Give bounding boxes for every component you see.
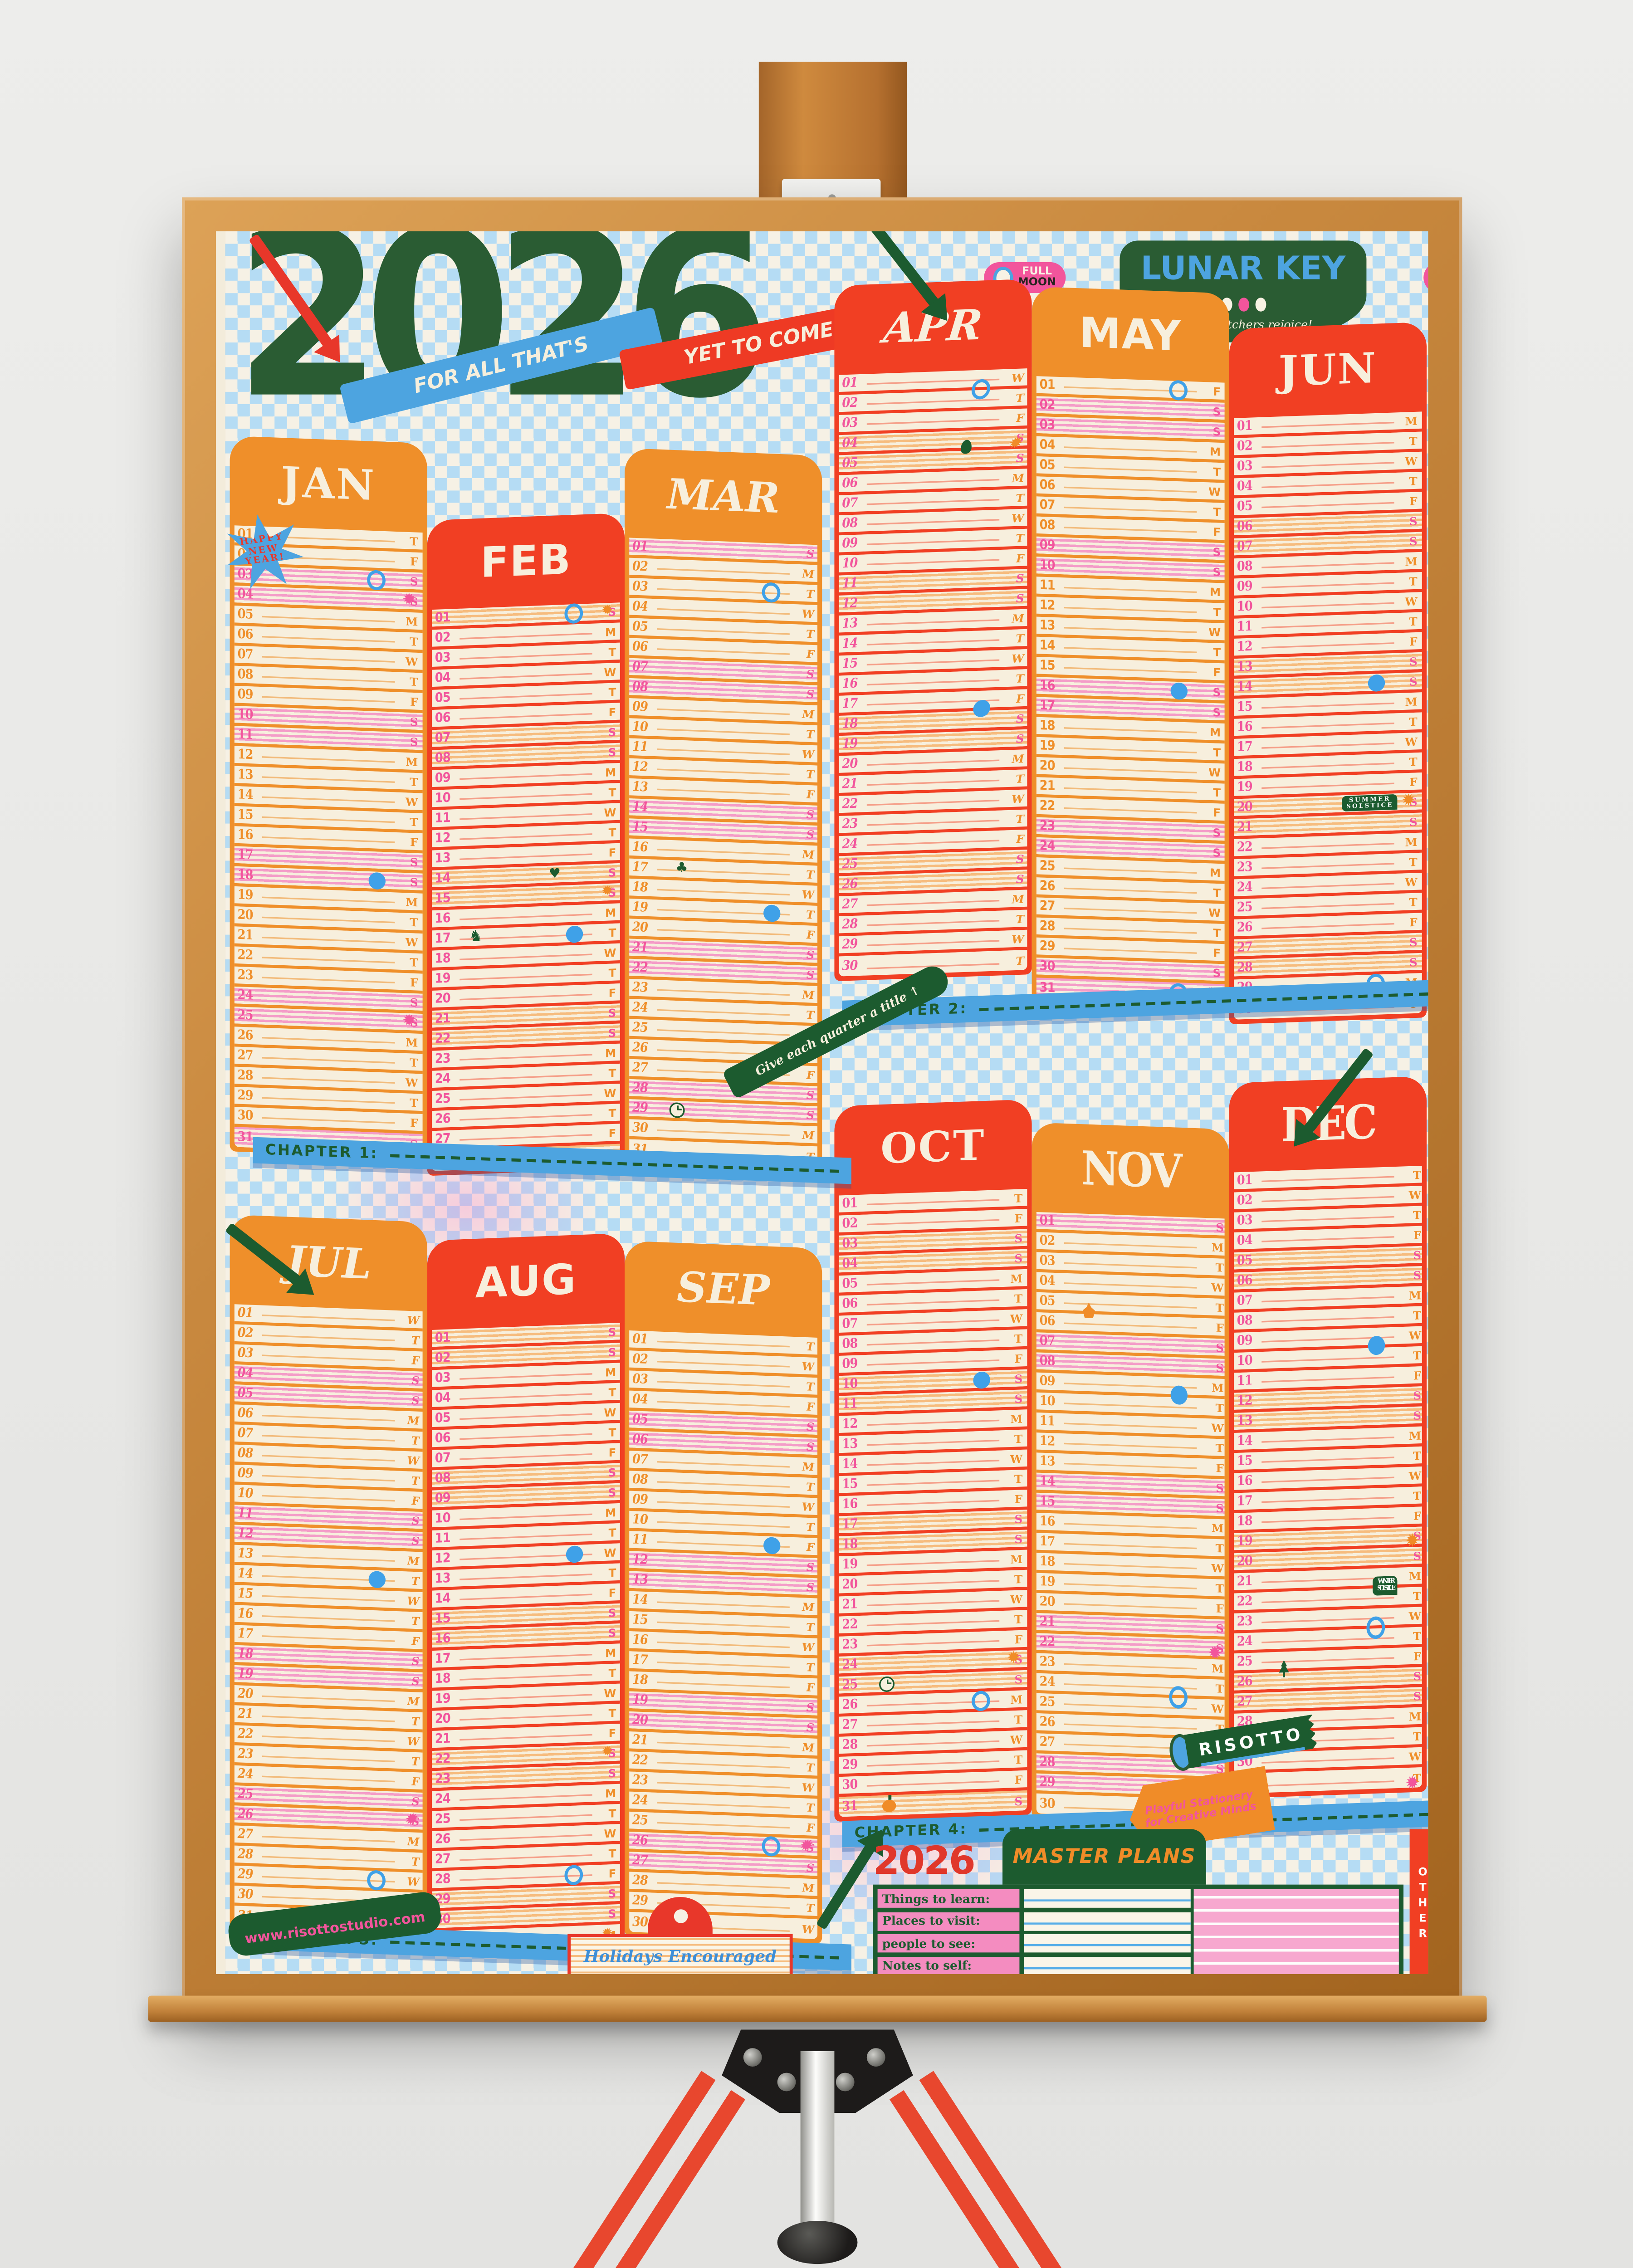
day-number: 11: [238, 1505, 258, 1522]
day-number: 06: [1237, 518, 1257, 535]
day-number: 06: [842, 475, 862, 492]
weekday-letter: S: [1016, 871, 1024, 885]
weekday-letter: T: [1216, 1400, 1222, 1414]
weekday-letter: T: [1213, 645, 1221, 659]
day-number: 03: [435, 650, 455, 666]
day-number: 11: [842, 1396, 862, 1412]
weekday-letter: W: [802, 1779, 814, 1794]
day-number: 18: [238, 867, 258, 884]
day-number: 21: [238, 927, 258, 943]
weekday-letter: W: [604, 664, 617, 679]
day-number: 04: [842, 435, 862, 451]
day-number: 25: [842, 1677, 862, 1693]
weekday-letter: S: [1213, 684, 1221, 699]
day-number: 12: [1040, 1433, 1060, 1450]
weekday-letter: F: [1213, 945, 1221, 959]
month-rows: 01S✹02M03T04W05T06F07S08S09M10T11W12T13F…: [432, 602, 620, 1171]
weekday-letter: T: [1409, 574, 1419, 588]
day-number: 02: [842, 395, 862, 411]
day-number: 29: [632, 1893, 653, 1909]
month-name: MAY: [1080, 309, 1182, 360]
day-number: 27: [632, 1853, 653, 1869]
day-number: 11: [435, 1530, 455, 1547]
day-number: 21: [1237, 1573, 1257, 1589]
day-number: 28: [632, 1080, 653, 1096]
weekday-letter: M: [1212, 1240, 1222, 1254]
day-number: 23: [238, 1746, 258, 1763]
day-number: 28: [632, 1872, 653, 1889]
day-number: 21: [435, 1731, 455, 1747]
month-panel-dec: DEC01T02W03T04F05S06S07M08T09W10T11F12S1…: [1229, 1076, 1427, 1799]
day-number: 12: [1040, 597, 1060, 614]
day-number: 27: [1237, 939, 1257, 956]
day-number: 03: [238, 1345, 258, 1362]
weekday-letter: F: [1015, 1632, 1024, 1646]
easel-pole-knob: [777, 2221, 858, 2264]
weekday-letter: T: [410, 814, 420, 828]
weekday-letter: S: [1213, 424, 1221, 438]
day-number: 15: [238, 807, 258, 823]
weekday-letter: T: [1213, 885, 1221, 899]
weekday-letter: W: [1010, 1311, 1024, 1325]
day-number: 20: [1040, 758, 1060, 774]
day-number: 19: [1040, 738, 1060, 754]
day-number: 01: [1040, 377, 1060, 393]
weekday-letter: W: [802, 1921, 814, 1936]
sparkle-icon: ✹: [405, 1813, 416, 1828]
weekday-letter: W: [802, 1359, 814, 1373]
weekday-letter: W: [604, 1685, 617, 1700]
holidays-encouraged-tag: Holidays Encouraged: [567, 1919, 792, 1974]
weekday-letter: T: [1409, 474, 1419, 488]
day-number: 17: [842, 696, 862, 712]
day-number: 07: [632, 659, 653, 675]
weekday-letter: M: [407, 1693, 420, 1708]
weekday-letter: T: [410, 955, 420, 969]
weekday-letter: T: [609, 1065, 617, 1079]
weekday-letter: M: [1405, 553, 1419, 568]
month-rows: 01W02T03F04S05S06M07T08W09T10F11S12S13M1…: [235, 1304, 423, 1933]
weekday-letter: S: [1016, 450, 1024, 464]
weekday-letter: M: [407, 1833, 420, 1848]
day-number: 13: [238, 767, 258, 783]
weekday-letter: S: [1015, 1511, 1024, 1525]
weekday-letter: M: [802, 1880, 814, 1894]
day-number: 27: [1040, 898, 1060, 914]
weekday-letter: T: [609, 1384, 617, 1398]
day-number: 14: [1040, 638, 1060, 654]
day-number: 15: [1237, 699, 1257, 715]
weekday-letter: F: [1213, 524, 1221, 538]
day-number: 12: [842, 596, 862, 612]
clock-change-icon: [670, 1101, 685, 1117]
bolt-icon: [867, 2048, 885, 2067]
weekday-letter: M: [605, 1364, 617, 1379]
weekday-letter: S: [807, 1700, 815, 1714]
full-moon-icon: [762, 582, 781, 602]
month-panel-feb: FEB01S✹02M03T04W05T06F07S08S09M10T11W12T…: [427, 513, 625, 1176]
weekday-letter: S: [411, 1794, 420, 1808]
weekday-letter: S: [807, 807, 815, 821]
easel-frame: 2026 FOR ALL THAT'S YET TO COME FULLMOON…: [182, 197, 1462, 2008]
sparkle-icon: ✹: [403, 594, 416, 608]
weekday-letter: T: [1014, 1331, 1024, 1345]
full-moon-icon: [564, 602, 583, 623]
weekday-letter: F: [410, 694, 420, 708]
day-number: 08: [238, 667, 258, 683]
day-number: 02: [632, 559, 653, 575]
year-title-art: 2026 FOR ALL THAT'S YET TO COME: [235, 231, 898, 472]
day-number: 17: [842, 1516, 862, 1533]
other-label: OTHER: [1417, 1866, 1428, 1943]
weekday-letter: T: [806, 626, 814, 640]
day-number: 03: [1040, 1253, 1060, 1269]
full-moon-icon: [367, 569, 386, 590]
weekday-letter: W: [1012, 931, 1024, 946]
day-number: 14: [238, 1566, 258, 1582]
weekday-letter: W: [802, 1639, 814, 1654]
weekday-letter: T: [1409, 894, 1419, 909]
weekday-letter: W: [1211, 1420, 1221, 1434]
weekday-letter: W: [1208, 624, 1222, 639]
day-number: 12: [1237, 1393, 1257, 1409]
day-number: 26: [1237, 919, 1257, 936]
day-number: 22: [632, 1752, 653, 1769]
weekday-letter: W: [1012, 651, 1024, 665]
weekday-letter: T: [1016, 530, 1024, 544]
day-number: 17: [238, 847, 258, 863]
weekday-letter: T: [806, 1339, 814, 1353]
day-number: 27: [1237, 1694, 1257, 1710]
day-number: 23: [435, 1051, 455, 1067]
weekday-letter: F: [1413, 1368, 1419, 1382]
weekday-letter: T: [806, 1619, 814, 1633]
day-number: 17: [1237, 739, 1257, 755]
day-number: 29: [842, 1757, 862, 1773]
day-number: 23: [1040, 1654, 1060, 1670]
day-number: 06: [1040, 1313, 1060, 1330]
new-moon-icon: [973, 1371, 990, 1388]
day-number: 30: [632, 1120, 653, 1136]
day-number: 15: [435, 1610, 455, 1627]
day-number: 13: [842, 1436, 862, 1452]
day-number: 14: [842, 1456, 862, 1472]
month-header: JUN: [1234, 322, 1422, 418]
day-number: 26: [632, 1833, 653, 1849]
day-number: 25: [238, 1786, 258, 1803]
weekday-letter: F: [1016, 691, 1024, 705]
day-number: 15: [842, 1476, 862, 1492]
day-number: 22: [1237, 839, 1257, 855]
day-number: 30: [1040, 1796, 1060, 1812]
weekday-letter: S: [807, 947, 815, 961]
day-number: 26: [632, 1040, 653, 1056]
month-panel-apr: APR01W02T03F04S✹05S06M07T08W09T10F11S12S…: [834, 279, 1032, 982]
day-number: 15: [632, 819, 653, 836]
day-number: 13: [238, 1546, 258, 1562]
weekday-letter: S: [1015, 1371, 1024, 1385]
day-number: 21: [238, 1706, 258, 1722]
sparkle-icon: ✹: [800, 1840, 812, 1854]
day-number: 15: [1040, 1494, 1060, 1510]
weekday-letter: M: [1210, 444, 1222, 458]
weekday-letter: W: [406, 934, 420, 949]
day-number: 05: [1040, 1293, 1060, 1310]
day-number: 19: [1237, 779, 1257, 795]
new-moon-icon: [566, 1545, 583, 1562]
day-number: 10: [632, 1512, 653, 1528]
day-number: 26: [1040, 1714, 1060, 1730]
weekday-letter: T: [411, 1333, 420, 1347]
weekday-letter: M: [802, 1740, 814, 1754]
weekday-letter: T: [1413, 1589, 1419, 1603]
month-name: OCT: [880, 1122, 986, 1173]
weekday-letter: T: [609, 1425, 617, 1439]
weekday-letter: S: [807, 1439, 815, 1453]
month-header: DEC: [1234, 1076, 1422, 1173]
full-moon-icon: [1169, 1685, 1188, 1708]
weekday-letter: S: [1413, 1669, 1419, 1683]
day-number: 26: [842, 876, 862, 893]
day-number: 04: [632, 1392, 653, 1408]
weekday-letter: M: [802, 706, 814, 721]
weekday-letter: T: [609, 684, 617, 699]
weekday-letter: T: [1216, 1440, 1222, 1454]
weekday-letter: W: [604, 1404, 617, 1419]
master-plans-grid: Things to learn: Places to visit: people…: [873, 1885, 1403, 1974]
weekday-letter: M: [1010, 1411, 1024, 1426]
day-number: 06: [238, 626, 258, 643]
weekday-letter: S: [1409, 814, 1419, 828]
day-number: 25: [1040, 1694, 1060, 1711]
day-number: 10: [238, 707, 258, 723]
weekday-letter: F: [1015, 1491, 1024, 1505]
day-number: 23: [1237, 1613, 1257, 1630]
day-number: 19: [842, 1556, 862, 1573]
chapter-2-writein-line: [980, 992, 1428, 1010]
day-number: 24: [238, 987, 258, 1004]
easel-ledge: [148, 1996, 1486, 2022]
month-panel-may: MAY01F02S03S04M05T06W07T08F09S10S11M12T1…: [1032, 287, 1229, 1009]
weekday-letter: S: [1413, 1247, 1419, 1261]
weekday-letter: M: [1010, 1271, 1024, 1285]
day-number: 18: [238, 1646, 258, 1662]
weekday-letter: S: [608, 744, 617, 758]
weekday-letter: W: [1010, 1592, 1024, 1606]
day-number: 15: [1040, 658, 1060, 674]
weekday-letter: S: [1409, 654, 1419, 668]
day-number: 10: [238, 1486, 258, 1502]
weekday-letter: S: [608, 724, 617, 738]
weekday-letter: M: [605, 1785, 617, 1800]
day-number: 11: [1040, 577, 1060, 594]
day-number: 29: [1040, 1774, 1060, 1790]
day-number: 08: [435, 1470, 455, 1486]
month-panel-oct: OCT01T02F03S04S05M06T07W08T09F10S11S12M1…: [834, 1099, 1032, 1822]
day-number: 12: [1237, 639, 1257, 655]
weekday-letter: F: [807, 1680, 814, 1694]
weekday-letter: T: [1213, 785, 1221, 799]
chapter-1-label: CHAPTER 1:: [265, 1142, 378, 1163]
day-number: 13: [632, 1572, 653, 1588]
day-number: 07: [238, 1425, 258, 1442]
weekday-letter: S: [1016, 851, 1024, 865]
weekday-letter: T: [1409, 854, 1419, 868]
easel-calendar-scene: 2026 FOR ALL THAT'S YET TO COME FULLMOON…: [0, 0, 1633, 2268]
mp-row-label: Notes to self:: [878, 1957, 1020, 1974]
day-number: 16: [238, 1606, 258, 1622]
day-number: 06: [435, 710, 455, 726]
day-number: 09: [632, 699, 653, 715]
weekday-letter: T: [411, 1754, 420, 1768]
weekday-letter: T: [1016, 811, 1024, 825]
day-number: 22: [238, 1726, 258, 1742]
day-number: 21: [435, 1011, 455, 1027]
month-rows: 01T02W03T04F05S06S07M08T09W10T11F12S13S1…: [1234, 1166, 1422, 1794]
month-name: AUG: [475, 1256, 577, 1307]
weekday-letter: T: [411, 1854, 420, 1868]
weekday-letter: M: [406, 614, 419, 628]
weekday-letter: T: [410, 674, 420, 688]
weekday-letter: M: [1405, 694, 1419, 709]
weekday-letter: W: [1010, 1732, 1024, 1746]
month-name: SEP: [677, 1264, 770, 1315]
sparkle-icon: ✹: [1209, 1647, 1218, 1662]
weekday-letter: T: [609, 1525, 617, 1539]
month-panel-jul: JUL01W02T03F04S05S06M07T08W09T10F11S12S1…: [230, 1215, 427, 1938]
day-number: 16: [632, 839, 653, 855]
weekday-letter: S: [1015, 1794, 1024, 1808]
weekday-letter: T: [411, 1714, 420, 1728]
day-number: 14: [1237, 679, 1257, 695]
day-number: 24: [238, 1766, 258, 1783]
weekday-letter: F: [609, 1725, 617, 1740]
weekday-letter: T: [609, 1665, 617, 1679]
weekday-letter: M: [1012, 470, 1024, 485]
month-name: JUN: [1279, 345, 1378, 396]
day-number: 03: [435, 1370, 455, 1386]
mp-notes-panel: [1194, 1889, 1399, 1974]
weekday-letter: F: [609, 1585, 617, 1599]
day-number: 21: [1040, 1614, 1060, 1630]
day-number: 26: [435, 1831, 455, 1848]
weekday-letter: M: [802, 1599, 814, 1614]
weekday-letter: S: [807, 666, 815, 680]
weekday-letter: F: [1015, 1351, 1024, 1365]
weekday-letter: T: [1413, 1207, 1419, 1222]
day-number: 13: [1040, 1453, 1060, 1470]
day-number: 05: [632, 1412, 653, 1428]
day-number: 08: [632, 679, 653, 695]
holiday-tag: SUMMER SOLSTICE: [1343, 793, 1398, 812]
heart-icon: ♥: [549, 867, 562, 881]
weekday-letter: T: [1409, 754, 1419, 768]
day-number: 04: [1040, 1273, 1060, 1289]
weekday-letter: T: [609, 825, 617, 839]
weekday-letter: F: [1015, 1211, 1024, 1225]
day-number: 21: [842, 776, 862, 792]
weekday-letter: T: [806, 867, 814, 881]
weekday-letter: T: [609, 644, 617, 658]
month-panel-nov: NOV01S02M03T04W05T06F07S08S09M10T11W12T1…: [1032, 1122, 1229, 1825]
weekday-letter: S: [410, 995, 420, 1009]
weekday-letter: S: [807, 1579, 815, 1593]
bolt-icon: [777, 2073, 796, 2092]
weekday-letter: T: [609, 1805, 617, 1819]
weekday-letter: F: [1016, 831, 1024, 845]
weekday-letter: S: [1016, 571, 1024, 585]
day-number: 04: [1040, 437, 1060, 454]
weekday-letter: W: [1208, 905, 1222, 919]
weekday-letter: T: [411, 1613, 420, 1628]
month-header: OCT: [839, 1100, 1027, 1196]
day-number: 26: [435, 1111, 455, 1127]
day-number: 12: [842, 1416, 862, 1432]
day-number: 05: [1040, 457, 1060, 474]
weekday-letter: W: [1409, 1328, 1419, 1342]
master-plans-year: 2026: [873, 1838, 974, 1883]
weekday-letter: S: [411, 1393, 420, 1407]
weekday-letter: S: [1015, 1391, 1024, 1405]
day-number: 28: [435, 1871, 455, 1887]
day-number: 18: [1237, 759, 1257, 775]
day-number: 17: [632, 860, 653, 876]
shamrock-icon: ♣: [675, 862, 688, 876]
day-number: 27: [842, 896, 862, 913]
sparkle-icon: ✹: [601, 1745, 614, 1760]
day-number: 24: [842, 1657, 862, 1673]
lunar-key-title: LUNAR KEY: [1120, 250, 1366, 287]
day-number: 28: [1040, 1754, 1060, 1770]
day-number: 22: [238, 947, 258, 963]
day-number: 31: [842, 1799, 862, 1815]
day-number: 08: [238, 1446, 258, 1462]
day-number: 16: [1237, 1473, 1257, 1489]
weekday-letter: T: [609, 1565, 617, 1579]
day-number: 02: [632, 1351, 653, 1368]
weekday-letter: W: [802, 1499, 814, 1514]
weekday-letter: T: [806, 727, 814, 741]
day-number: 02: [238, 1325, 258, 1341]
day-number: 23: [632, 980, 653, 996]
weekday-letter: W: [604, 1085, 617, 1100]
brand-tagline: Playful Stationery for Creative Minds: [1143, 1788, 1257, 1830]
weekday-letter: M: [605, 1645, 617, 1660]
day-number: 06: [1237, 1272, 1257, 1289]
weekday-letter: T: [609, 925, 617, 939]
month-panel-sep: SEP01T02W03T04F05S06S07M08T09W10T11F12S1…: [625, 1241, 822, 1944]
weekday-letter: T: [806, 1379, 814, 1393]
day-number: 14: [238, 787, 258, 803]
weekday-letter: S: [1216, 1220, 1222, 1234]
weekday-letter: S: [410, 875, 420, 889]
month-name: NOV: [1081, 1142, 1180, 1199]
weekday-letter: T: [1216, 1540, 1222, 1554]
day-number: 28: [1237, 959, 1257, 976]
month-panel-aug: AUG01S02S03M04T05W06T07F08S09S10M11T12W1…: [427, 1233, 625, 1956]
weekday-letter: S: [1016, 731, 1024, 745]
day-number: 10: [1237, 1353, 1257, 1369]
weekday-letter: W: [1012, 791, 1024, 806]
weekday-letter: S: [1213, 544, 1221, 558]
day-number: 17: [238, 1626, 258, 1642]
weekday-letter: S: [1409, 674, 1419, 688]
day-number: 11: [632, 1532, 653, 1548]
day-number: 24: [435, 1070, 455, 1087]
weekday-letter: F: [609, 985, 617, 999]
day-number: 01: [1237, 1172, 1257, 1188]
weekday-letter: M: [1405, 834, 1419, 849]
